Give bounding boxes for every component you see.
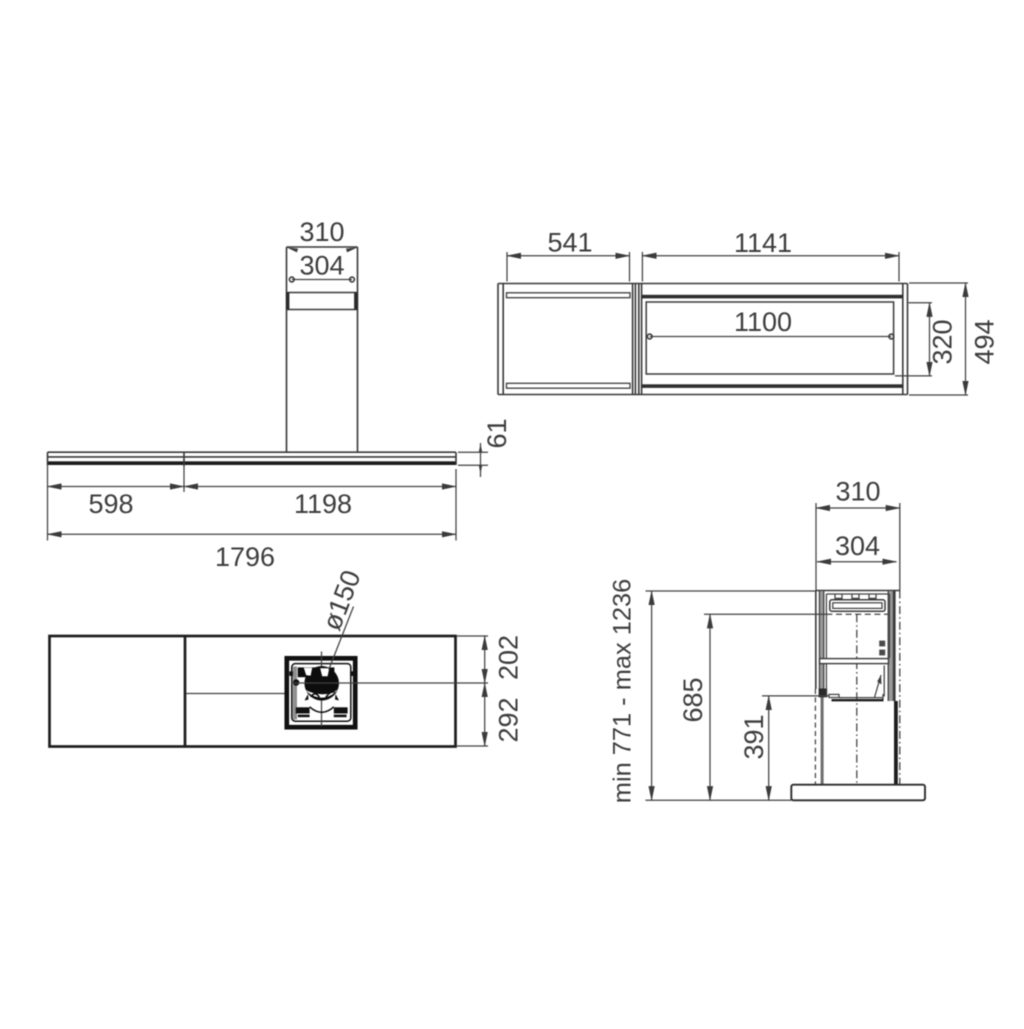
svg-text:494: 494 [970,319,1000,364]
svg-text:61: 61 [482,418,512,448]
svg-text:685: 685 [678,677,708,722]
svg-text:1796: 1796 [215,542,275,572]
svg-text:min 771 - max 1236: min 771 - max 1236 [609,579,637,803]
svg-text:1198: 1198 [294,489,352,519]
svg-text:304: 304 [835,531,880,561]
svg-text:598: 598 [88,489,133,519]
svg-text:202: 202 [494,635,524,680]
svg-text:304: 304 [299,251,344,281]
svg-text:310: 310 [299,217,344,247]
svg-text:541: 541 [547,228,592,258]
svg-text:1141: 1141 [734,228,792,258]
svg-text:310: 310 [835,477,880,507]
svg-text:ø150: ø150 [317,566,367,634]
svg-text:320: 320 [928,319,958,364]
svg-text:391: 391 [739,714,769,759]
svg-text:1100: 1100 [734,307,792,337]
svg-text:292: 292 [494,697,524,742]
